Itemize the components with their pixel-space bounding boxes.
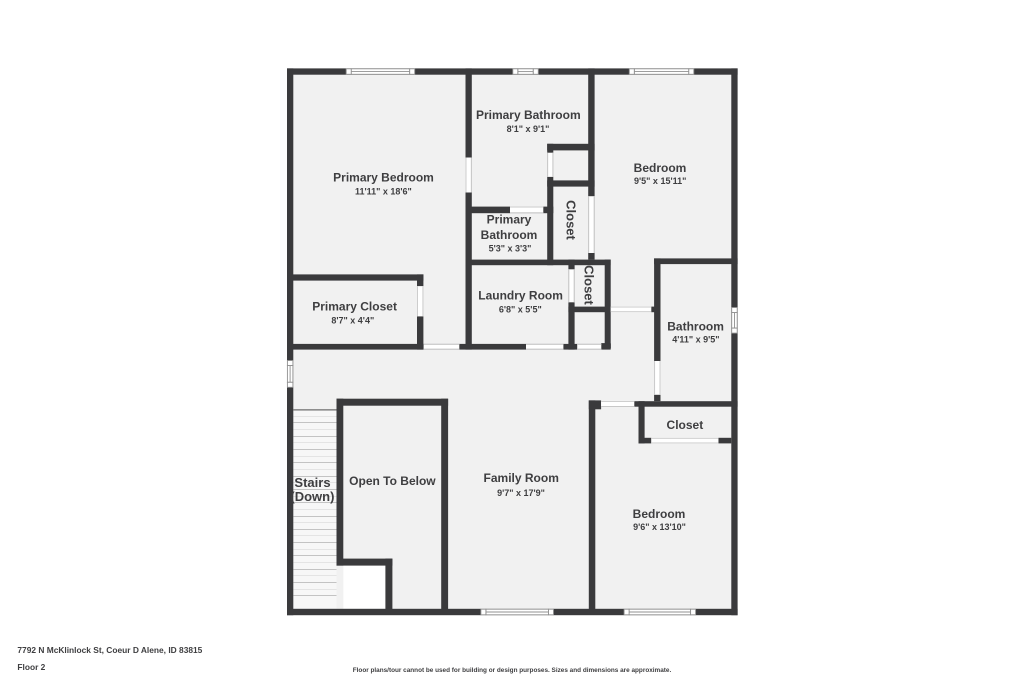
svg-text:9'7" x 17'9": 9'7" x 17'9" xyxy=(497,488,545,498)
svg-text:Floor 2: Floor 2 xyxy=(17,662,45,672)
svg-text:Open To Below: Open To Below xyxy=(349,474,436,488)
svg-text:9'5" x 15'11": 9'5" x 15'11" xyxy=(634,176,686,186)
svg-text:Closet: Closet xyxy=(582,265,597,305)
svg-text:Bedroom: Bedroom xyxy=(633,507,686,521)
svg-text:Primary Bathroom: Primary Bathroom xyxy=(476,108,581,122)
svg-text:Closet: Closet xyxy=(667,418,704,432)
svg-text:Laundry Room: Laundry Room xyxy=(478,289,563,303)
svg-text:Closet: Closet xyxy=(563,200,578,240)
svg-text:8'1" x 9'1": 8'1" x 9'1" xyxy=(507,124,550,134)
svg-text:7792 N McKlinlock St, Coeur D: 7792 N McKlinlock St, Coeur D Alene, ID … xyxy=(17,645,202,655)
svg-text:6'8" x 5'5": 6'8" x 5'5" xyxy=(499,304,542,314)
svg-text:Floor plans/tour cannot be use: Floor plans/tour cannot be used for buil… xyxy=(353,667,672,674)
svg-text:Primary: Primary xyxy=(487,213,532,227)
svg-text:11'11" x 18'6": 11'11" x 18'6" xyxy=(355,186,412,196)
svg-text:Stairs: Stairs xyxy=(294,475,330,490)
svg-text:Primary Bedroom: Primary Bedroom xyxy=(333,170,434,184)
svg-text:5'3" x 3'3": 5'3" x 3'3" xyxy=(489,243,532,253)
svg-text:(Down): (Down) xyxy=(290,489,334,504)
svg-text:Bathroom: Bathroom xyxy=(667,319,724,333)
svg-text:4'11" x 9'5": 4'11" x 9'5" xyxy=(672,335,719,345)
svg-text:Primary Closet: Primary Closet xyxy=(312,299,397,313)
svg-text:8'7" x 4'4": 8'7" x 4'4" xyxy=(331,315,374,325)
svg-text:9'6" x 13'10": 9'6" x 13'10" xyxy=(633,522,686,532)
svg-text:Bedroom: Bedroom xyxy=(634,161,687,175)
svg-text:Bathroom: Bathroom xyxy=(481,228,538,242)
svg-text:Family Room: Family Room xyxy=(484,471,559,485)
